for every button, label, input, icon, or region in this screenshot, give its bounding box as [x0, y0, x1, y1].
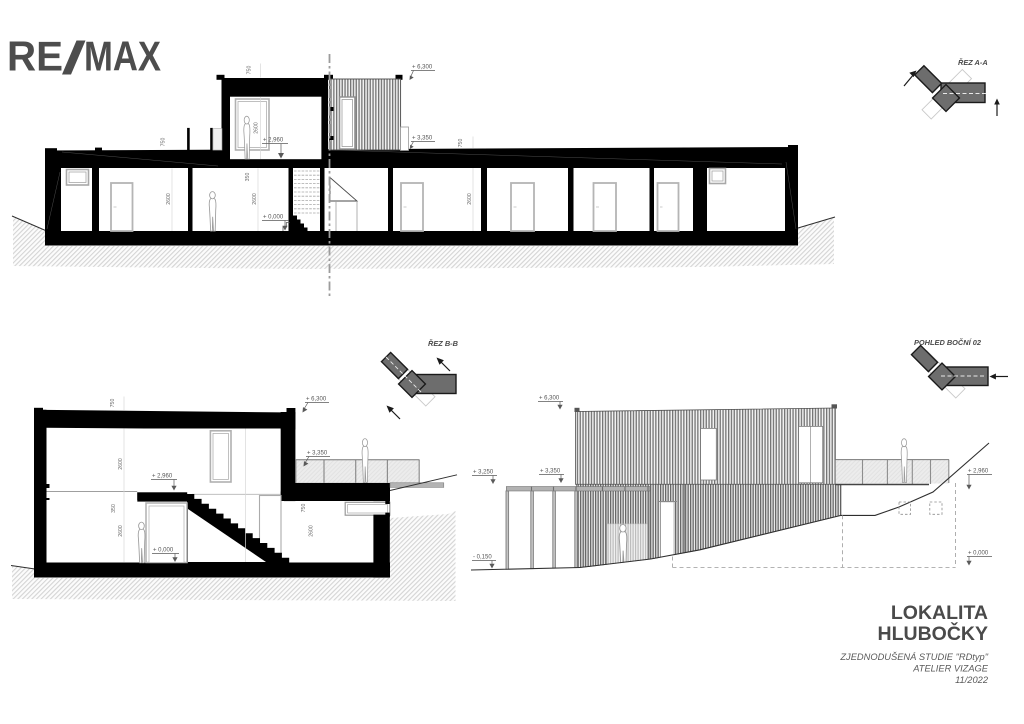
svg-text:2600: 2600: [252, 193, 258, 205]
svg-text:350: 350: [245, 173, 251, 182]
svg-text:2600: 2600: [467, 193, 473, 205]
svg-text:+ 6,300: + 6,300: [412, 65, 433, 71]
svg-text:ŘEZ B-B: ŘEZ B-B: [428, 339, 459, 348]
svg-text:- 0,150: - 0,150: [473, 555, 492, 561]
svg-text:2600: 2600: [166, 193, 172, 205]
svg-text:+ 2,960: + 2,960: [263, 138, 284, 144]
svg-text:MAX: MAX: [84, 33, 161, 80]
svg-text:750: 750: [301, 504, 307, 513]
svg-text:2600: 2600: [254, 122, 260, 134]
svg-text:+ 3,250: + 3,250: [473, 470, 494, 476]
svg-text:ATELIER VIZAGE: ATELIER VIZAGE: [912, 664, 989, 674]
svg-text:11/2022: 11/2022: [955, 675, 989, 685]
svg-text:750: 750: [110, 399, 116, 408]
svg-text:350: 350: [111, 504, 117, 513]
svg-text:+ 3,350: + 3,350: [307, 451, 328, 457]
svg-text:2600: 2600: [309, 525, 315, 537]
svg-text:ŘEZ A-A: ŘEZ A-A: [958, 58, 988, 67]
svg-text:+ 2,960: + 2,960: [968, 469, 989, 475]
svg-text:LOKALITA: LOKALITA: [891, 602, 988, 624]
svg-text:ZJEDNODUŠENÁ STUDIE "RDtyp": ZJEDNODUŠENÁ STUDIE "RDtyp": [839, 652, 988, 662]
svg-text:750: 750: [247, 66, 253, 75]
svg-text:750: 750: [161, 138, 167, 147]
svg-text:+ 6,300: + 6,300: [539, 396, 560, 402]
svg-text:+ 0,000: + 0,000: [968, 551, 989, 557]
svg-text:+ 2,960: + 2,960: [152, 474, 173, 480]
svg-text:+ 6,300: + 6,300: [306, 397, 327, 403]
svg-text:HLUBOČKY: HLUBOČKY: [878, 621, 989, 645]
svg-text:2600: 2600: [118, 458, 124, 470]
svg-text:+ 3,350: + 3,350: [412, 136, 433, 142]
svg-text:+ 3,350: + 3,350: [540, 469, 561, 475]
svg-text:2600: 2600: [118, 525, 124, 537]
svg-text:RE: RE: [7, 33, 63, 80]
svg-text:POHLED BOČNÍ 02: POHLED BOČNÍ 02: [914, 338, 982, 347]
svg-text:+ 0,000: + 0,000: [153, 548, 174, 554]
svg-text:750: 750: [458, 139, 464, 148]
svg-text:+ 0,000: + 0,000: [263, 215, 284, 221]
